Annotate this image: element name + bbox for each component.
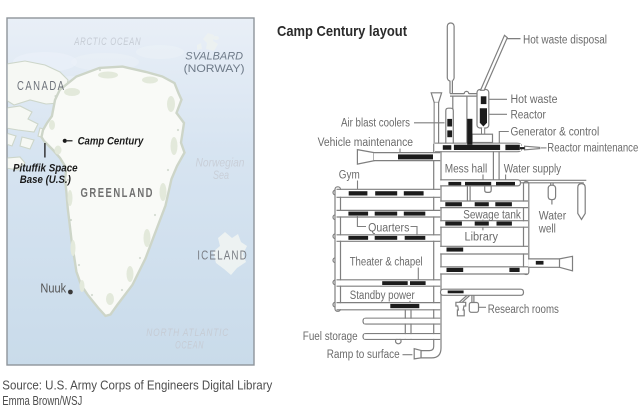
svg-text:Ramp to surface: Ramp to surface [327, 349, 400, 361]
svg-text:Quarters: Quarters [368, 223, 410, 235]
svg-text:Reactor maintenance: Reactor maintenance [547, 143, 638, 155]
svg-text:OCEAN: OCEAN [175, 339, 204, 351]
svg-text:Camp Century: Camp Century [78, 135, 145, 147]
svg-text:Nuuk: Nuuk [40, 281, 66, 296]
svg-text:ICELAND: ICELAND [197, 248, 248, 263]
svg-text:Pituffik Space: Pituffik Space [13, 162, 78, 174]
svg-text:Fuel storage: Fuel storage [303, 331, 358, 343]
svg-text:NORTH ATLANTIC: NORTH ATLANTIC [146, 327, 229, 339]
svg-text:Theater & chapel: Theater & chapel [350, 256, 423, 268]
svg-text:Air blast coolers: Air blast coolers [341, 117, 410, 129]
svg-text:Water: Water [539, 211, 567, 223]
svg-text:Vehicle maintenance: Vehicle maintenance [318, 137, 413, 149]
svg-text:Generator & control: Generator & control [511, 127, 600, 139]
svg-text:Water supply: Water supply [504, 163, 562, 175]
svg-text:Reactor: Reactor [511, 110, 547, 122]
svg-text:Library: Library [465, 231, 499, 243]
svg-text:Mess hall: Mess hall [445, 163, 488, 175]
svg-text:Emma Brown/WSJ: Emma Brown/WSJ [2, 393, 82, 408]
svg-text:well: well [538, 224, 556, 236]
svg-text:ARCTIC OCEAN: ARCTIC OCEAN [74, 36, 142, 48]
svg-text:Hot waste disposal: Hot waste disposal [523, 34, 607, 46]
svg-text:Base (U.S.): Base (U.S.) [20, 174, 71, 186]
svg-text:Sewage tank: Sewage tank [463, 209, 521, 221]
svg-text:GREENLAND: GREENLAND [81, 186, 155, 200]
svg-text:Camp Century layout: Camp Century layout [277, 23, 407, 40]
svg-text:Sea: Sea [213, 168, 229, 182]
svg-text:CANADA: CANADA [17, 78, 66, 93]
svg-text:SVALBARD: SVALBARD [185, 51, 243, 63]
svg-text:Research rooms: Research rooms [488, 304, 559, 316]
svg-text:Gym: Gym [339, 169, 360, 181]
svg-text:Source: U.S. Army Corps of Eng: Source: U.S. Army Corps of Engineers Dig… [2, 378, 272, 393]
svg-text:Hot waste: Hot waste [511, 94, 558, 106]
svg-text:(NORWAY): (NORWAY) [184, 63, 245, 75]
svg-text:Standby power: Standby power [350, 290, 415, 302]
